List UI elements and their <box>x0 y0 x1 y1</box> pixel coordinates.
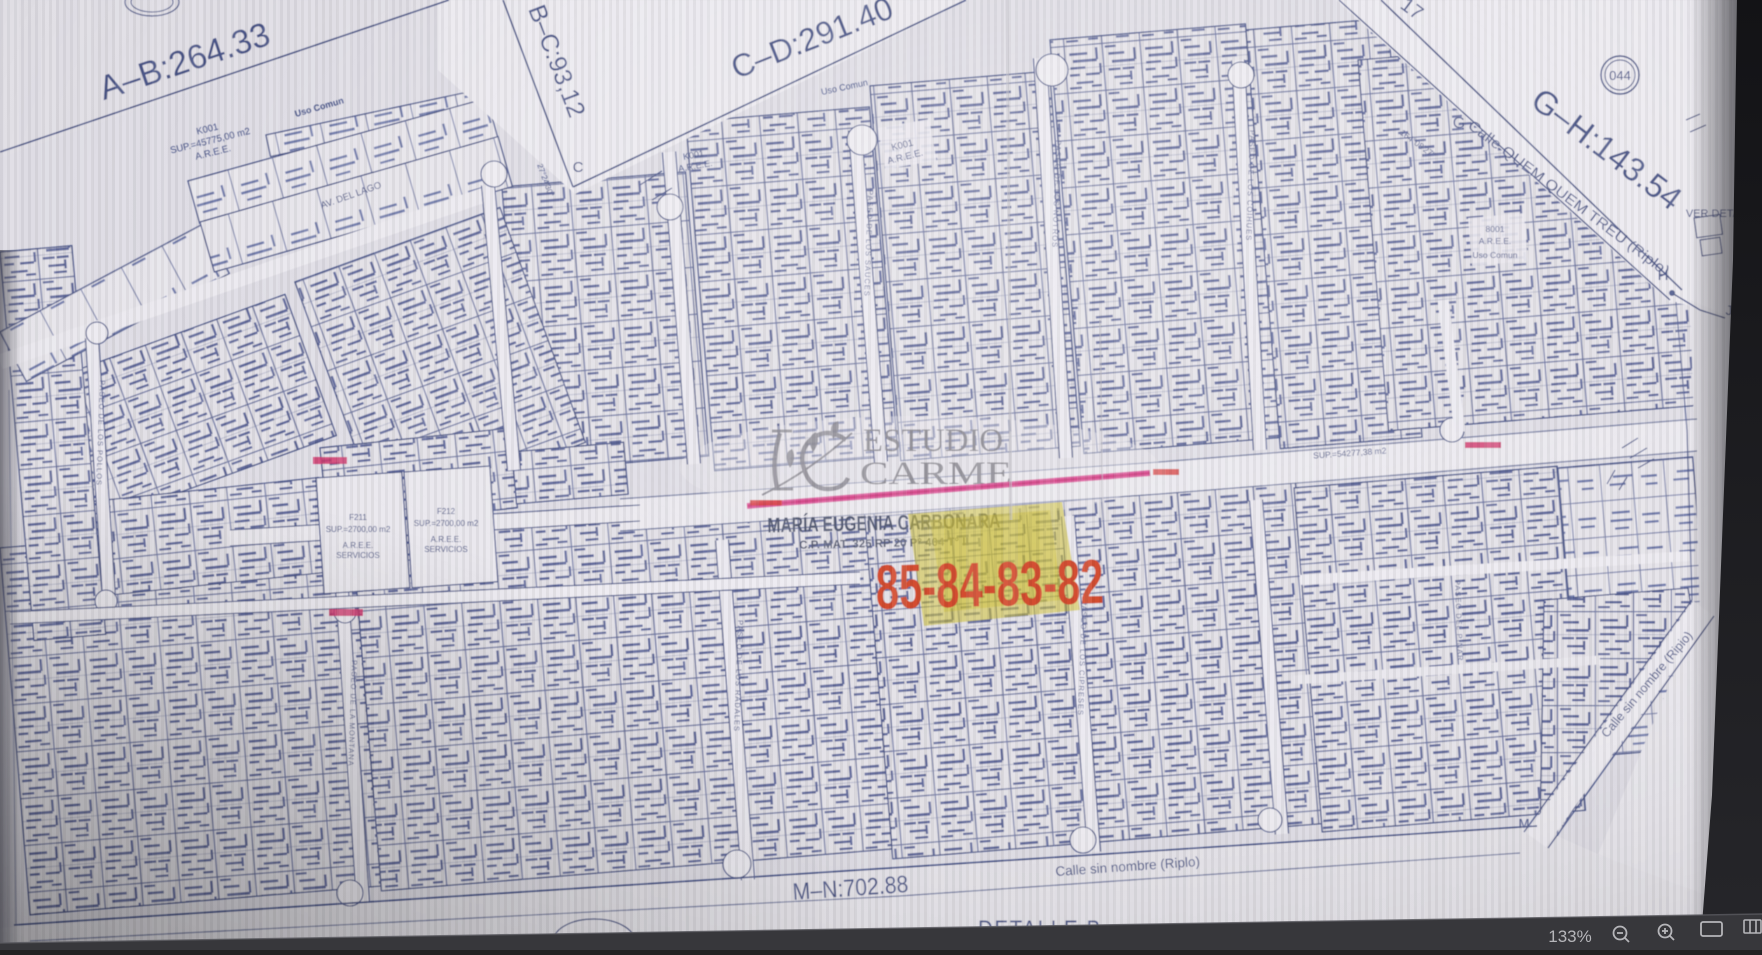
svg-text:133%: 133% <box>1548 927 1591 946</box>
